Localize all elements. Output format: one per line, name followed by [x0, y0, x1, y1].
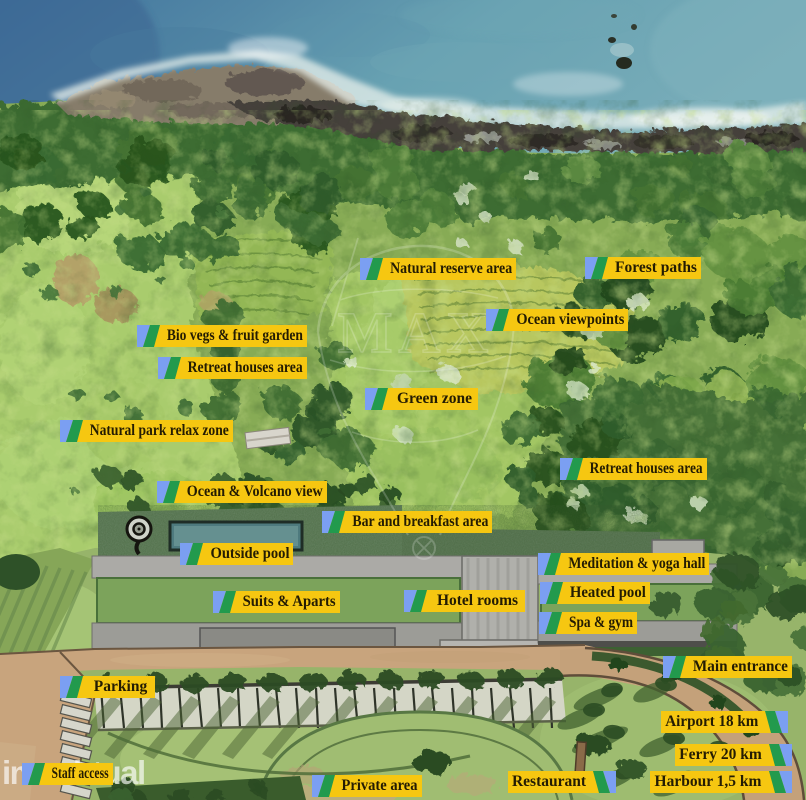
svg-text:MAX: MAX — [338, 300, 495, 365]
